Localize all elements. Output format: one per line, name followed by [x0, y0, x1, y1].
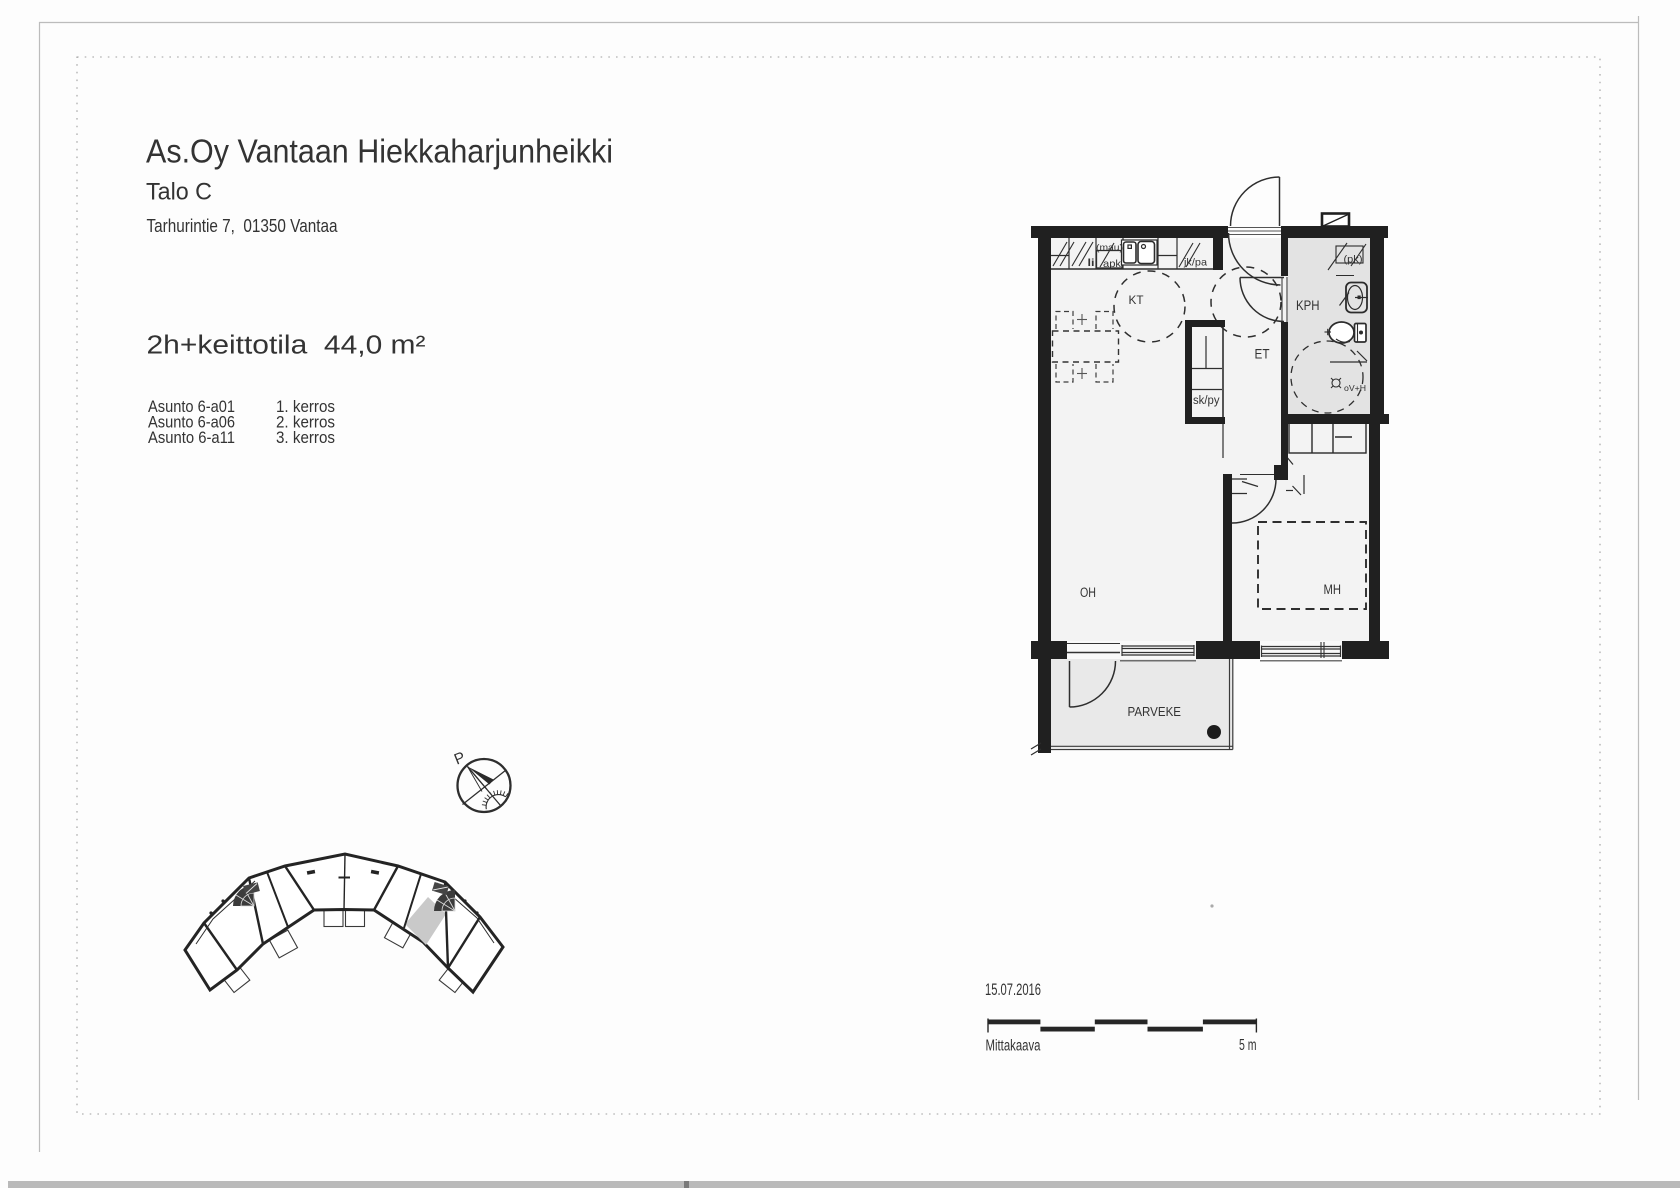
- svg-text:(mau): (mau): [1096, 243, 1123, 254]
- svg-text:PARVEKE: PARVEKE: [1128, 704, 1182, 719]
- svg-text:15.07.2016: 15.07.2016: [985, 981, 1041, 999]
- svg-text:oV+H: oV+H: [1344, 384, 1366, 393]
- svg-text:P: P: [452, 749, 468, 769]
- svg-text:ET: ET: [1255, 347, 1270, 362]
- svg-text:jk/pa: jk/pa: [1183, 257, 1207, 269]
- svg-text:2h+keittotila 44,0 m²: 2h+keittotila 44,0 m²: [147, 332, 426, 360]
- svg-text:Mittakaava: Mittakaava: [986, 1038, 1041, 1055]
- svg-text:5 m: 5 m: [1239, 1037, 1257, 1054]
- svg-text:KPH: KPH: [1296, 297, 1320, 313]
- svg-text:li: li: [1088, 257, 1095, 269]
- svg-text:3. kerros: 3. kerros: [276, 429, 335, 447]
- svg-text:apk: apk: [1103, 258, 1122, 270]
- svg-text:OH: OH: [1080, 585, 1096, 600]
- svg-text:KT: KT: [1129, 293, 1145, 307]
- svg-text:(pk): (pk): [1344, 255, 1363, 266]
- svg-text:As.Oy Vantaan Hiekkaharjunheik: As.Oy Vantaan Hiekkaharjunheikki: [146, 133, 613, 170]
- svg-text:Asunto 6-a11: Asunto 6-a11: [148, 429, 235, 447]
- svg-text:Tarhurintie 7, 01350 Vantaa: Tarhurintie 7, 01350 Vantaa: [147, 216, 339, 236]
- svg-text:MH: MH: [1324, 582, 1342, 597]
- svg-text:Talo C: Talo C: [146, 179, 212, 206]
- svg-text:sk/py: sk/py: [1193, 395, 1220, 407]
